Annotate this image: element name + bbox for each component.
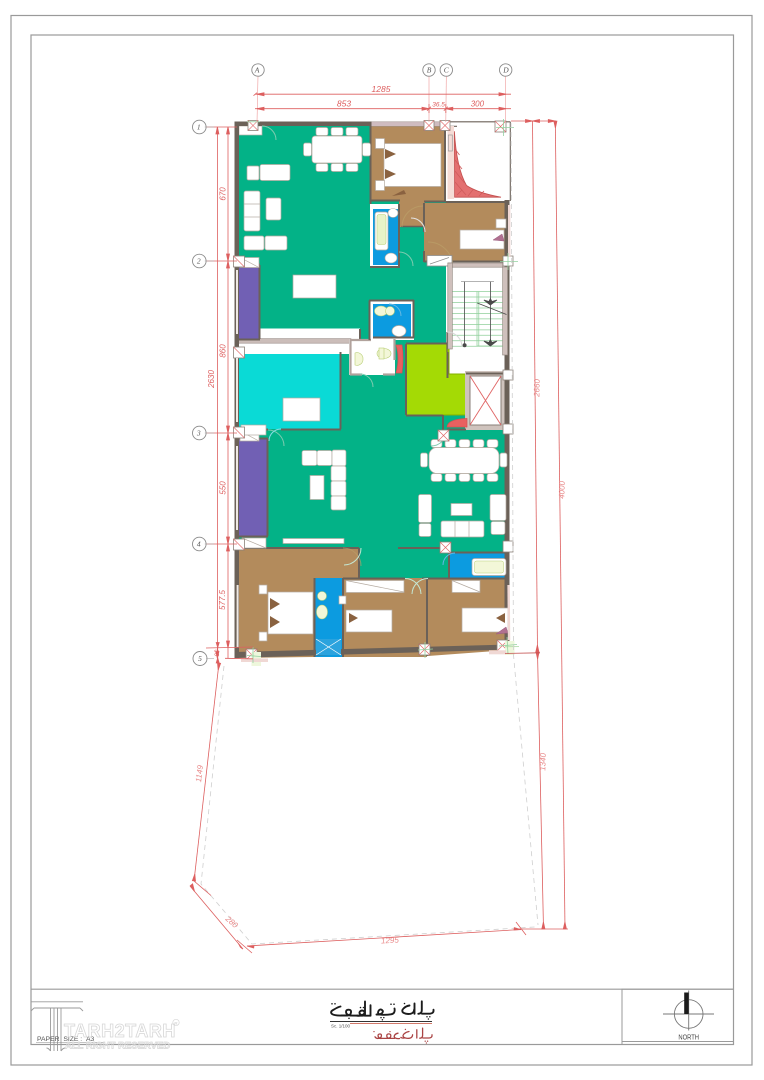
- svg-text:4: 4: [197, 540, 201, 549]
- svg-text:3: 3: [196, 429, 201, 438]
- svg-text:5: 5: [198, 654, 202, 663]
- svg-text:4000: 4000: [557, 480, 567, 499]
- svg-text:D: D: [502, 66, 509, 75]
- svg-text:36.5: 36.5: [432, 102, 445, 109]
- svg-text:1285: 1285: [372, 84, 391, 94]
- svg-text:577.5: 577.5: [218, 589, 227, 610]
- svg-text:TARH2TARH: TARH2TARH: [64, 1021, 176, 1041]
- svg-text:550: 550: [219, 481, 228, 495]
- svg-text:90: 90: [215, 649, 221, 656]
- svg-text:Sc. 1/100: Sc. 1/100: [331, 1024, 351, 1029]
- svg-text:1149: 1149: [194, 764, 205, 783]
- svg-text:NORTH: NORTH: [678, 1034, 699, 1042]
- svg-text:A: A: [254, 66, 260, 75]
- svg-text:860: 860: [219, 344, 228, 358]
- svg-text:853: 853: [337, 99, 351, 109]
- svg-text:2630: 2630: [207, 370, 216, 389]
- svg-text:2: 2: [197, 257, 201, 266]
- svg-text:2660: 2660: [532, 378, 541, 398]
- svg-text:1: 1: [197, 123, 201, 132]
- svg-text:670: 670: [219, 187, 228, 201]
- svg-text:B: B: [427, 66, 432, 75]
- svg-text:1340: 1340: [538, 752, 548, 771]
- svg-text:300: 300: [471, 100, 485, 109]
- svg-text:1295: 1295: [381, 936, 400, 946]
- svg-text:ALL RIGHT RESERVED: ALL RIGHT RESERVED: [65, 1041, 170, 1052]
